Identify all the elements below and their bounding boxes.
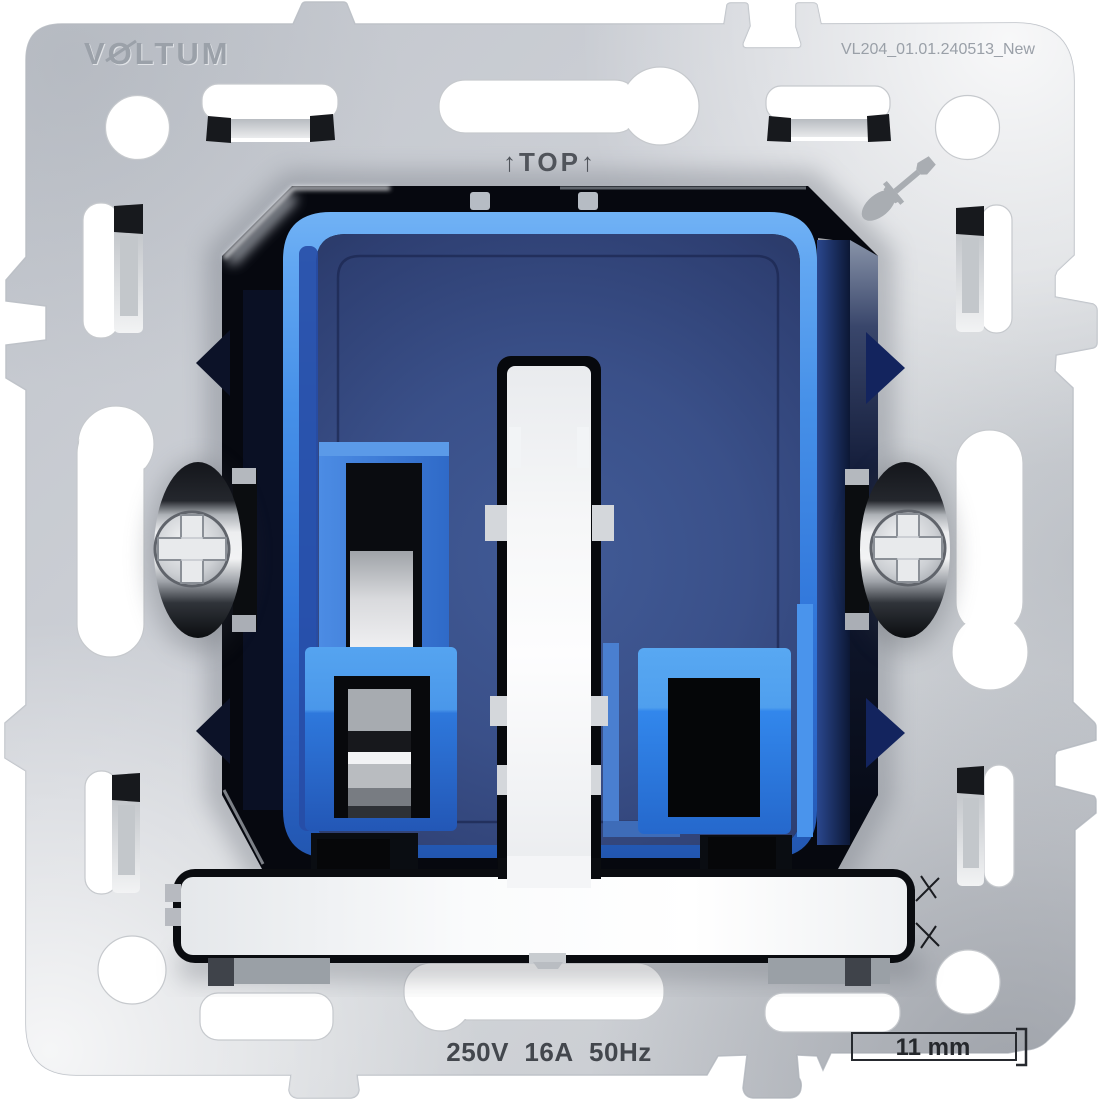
svg-text:↑TOP↑: ↑TOP↑ bbox=[503, 147, 597, 177]
svg-text:11 mm: 11 mm bbox=[896, 1034, 971, 1061]
svg-text:VL204_01.01.240513_New: VL204_01.01.240513_New bbox=[841, 41, 1035, 58]
svg-text:VOLTUM: VOLTUM bbox=[84, 36, 231, 71]
svg-text:250V 16A 50Hz: 250V 16A 50Hz bbox=[446, 1037, 652, 1067]
